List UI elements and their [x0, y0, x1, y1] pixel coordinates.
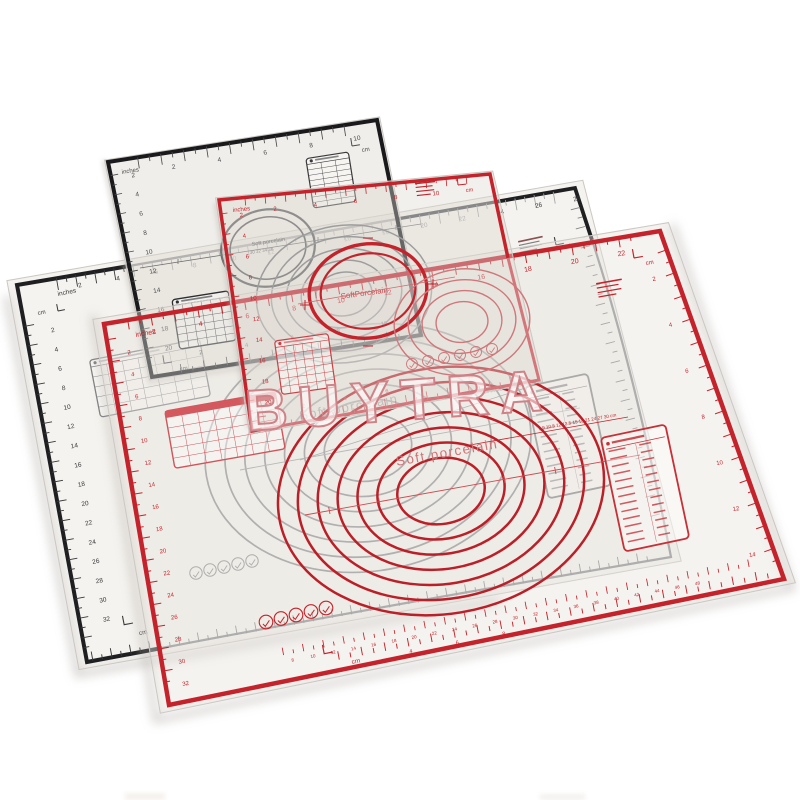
svg-text:10: 10 — [353, 135, 362, 143]
svg-text:cm: cm — [466, 187, 474, 194]
svg-text:10: 10 — [432, 191, 440, 198]
svg-text:14: 14 — [256, 337, 264, 344]
svg-text:18: 18 — [524, 266, 533, 274]
svg-text:cm: cm — [361, 147, 370, 154]
svg-text:10: 10 — [145, 248, 154, 256]
svg-text:20: 20 — [570, 258, 579, 266]
svg-text:10: 10 — [250, 296, 258, 303]
svg-text:12: 12 — [253, 317, 261, 324]
svg-text:14: 14 — [153, 287, 162, 295]
svg-text:22: 22 — [617, 250, 626, 258]
svg-text:16: 16 — [259, 358, 267, 365]
svg-text:12: 12 — [149, 268, 158, 276]
